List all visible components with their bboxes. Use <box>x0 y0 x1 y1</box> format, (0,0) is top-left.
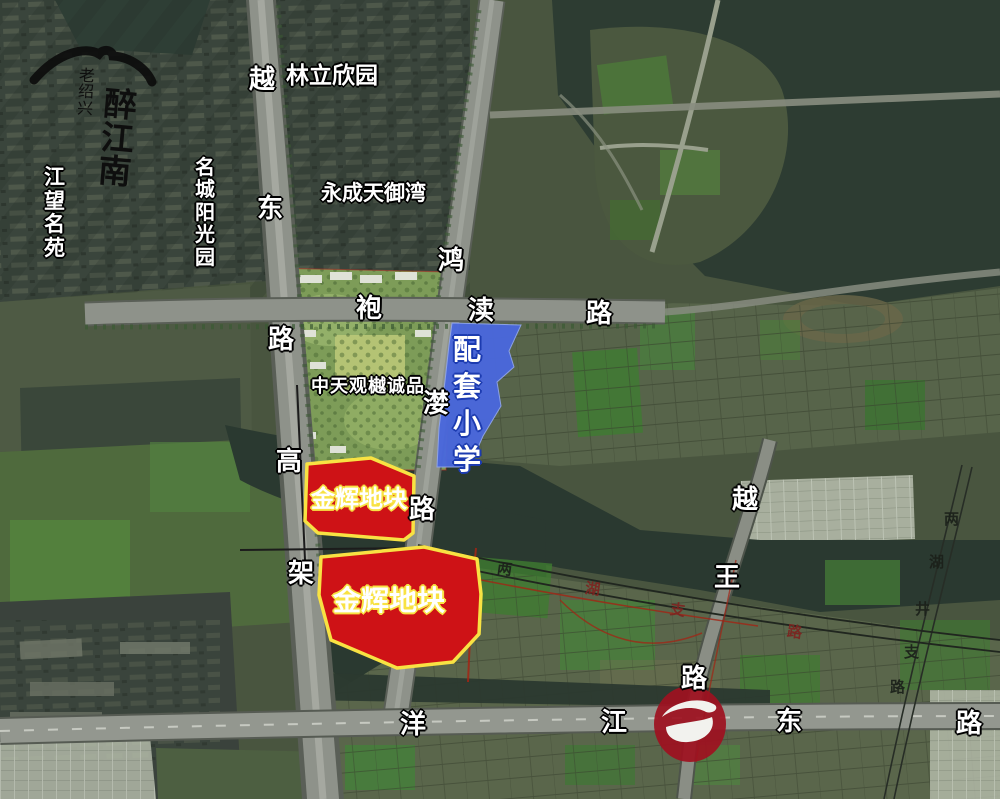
jinhui-plot-south-label: 金辉地块 <box>333 587 445 615</box>
road-label-yuedong-2: 东 <box>257 196 283 222</box>
road-label-lianghu-east-3: 井 <box>915 602 930 617</box>
school-parcel-label-4: 学 <box>453 446 481 474</box>
road-label-honglan-3: 路 <box>409 497 435 523</box>
road-label-yuedong-3: 路 <box>268 327 294 353</box>
road-label-paodu-3: 路 <box>586 301 612 327</box>
road-label-honglan-1: 鸿 <box>438 248 464 274</box>
road-label-honglan-2: 漤 <box>423 391 449 417</box>
road-label-lianghu-south-3: 支 <box>669 602 686 619</box>
road-label-yuewang-2: 王 <box>714 565 740 591</box>
road-label-lianghu-east-5: 路 <box>890 680 905 695</box>
jinhui-plot-north-label: 金辉地块 <box>311 487 407 511</box>
brand-calligraphy-small: 老绍兴 <box>77 68 97 118</box>
satellite-basemap <box>0 0 1000 799</box>
school-parcel-label-3: 小 <box>453 410 481 438</box>
road-label-paodu-1: 袍 <box>356 296 382 322</box>
road-label-lianghu-south-2: 湖 <box>584 581 601 598</box>
road-label-lianghu-south-4: 路 <box>786 624 803 641</box>
school-parcel-label-2: 套 <box>453 373 481 401</box>
road-label-yuewang-3: 路 <box>681 666 707 692</box>
satellite-location-map: 老绍兴 醉江南 江望名苑 名城阳光园 林立欣园 永成天御湾 中天观樾诚品 越 东… <box>0 0 1000 799</box>
road-label-yangjiang-2: 江 <box>601 710 627 736</box>
road-label-yuedong-1: 越 <box>249 67 275 93</box>
road-label-yuedong-4: 高 <box>276 449 302 475</box>
road-label-yangjiang-3: 东 <box>776 709 802 735</box>
label-linli-xinyuan: 林立欣园 <box>286 64 378 90</box>
road-label-lianghu-east-2: 湖 <box>929 555 944 570</box>
label-yongcheng-tianyuwan: 永成天御湾 <box>321 182 426 206</box>
road-label-lianghu-south-1: 两 <box>496 561 513 578</box>
road-label-yangjiang-4: 路 <box>956 711 982 737</box>
road-label-yuewang-1: 越 <box>732 487 758 513</box>
road-label-yangjiang-1: 洋 <box>400 712 426 738</box>
jinhui-logo-badge <box>654 686 726 762</box>
label-mingcheng-yangguangyuan: 名城阳光园 <box>195 156 216 268</box>
road-label-paodu-2: 渎 <box>468 298 494 324</box>
road-label-lianghu-east-4: 支 <box>904 645 919 660</box>
road-label-yuedong-5: 架 <box>288 561 314 587</box>
label-jiangwang-mingyuan: 江望名苑 <box>44 166 66 260</box>
road-label-lianghu-east-1: 两 <box>944 512 959 527</box>
label-zhongtian-guanyue: 中天观樾诚品 <box>311 377 425 397</box>
school-parcel-label-1: 配 <box>453 336 481 364</box>
